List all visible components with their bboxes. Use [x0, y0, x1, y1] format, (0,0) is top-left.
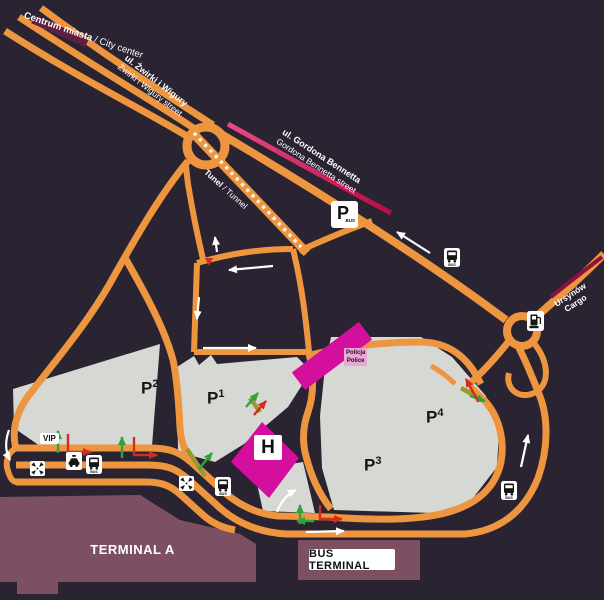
- road-loop-right: [293, 249, 309, 352]
- parking-p2-area: [13, 344, 160, 447]
- bus-stop-icon: [444, 248, 460, 267]
- parking-p4-label: P4: [426, 407, 443, 428]
- parking-p2-label: P2: [141, 378, 158, 399]
- police-label: Policja Police: [344, 348, 367, 366]
- taxi-icon: [66, 452, 82, 470]
- road-bundle-2: [19, 17, 198, 131]
- parking-p3-label: P3: [364, 455, 381, 476]
- map-canvas: BUS: [0, 0, 604, 600]
- terminal-a-annex: [17, 582, 58, 594]
- road-loop-stem: [186, 164, 203, 259]
- parking-p1-label: P1: [207, 388, 224, 409]
- vip-label: VIP: [40, 433, 59, 444]
- airport-access-map: BUS: [0, 0, 604, 600]
- terminal-a-label: TERMINAL A: [30, 542, 235, 557]
- meeting-point-icon: [179, 476, 194, 491]
- meeting-point-icon: [30, 461, 45, 476]
- road-loop-left: [194, 263, 197, 352]
- bus-stop-icon: [215, 477, 231, 496]
- fuel-station-icon: [527, 311, 544, 331]
- road-roundabout2-down: [469, 341, 509, 384]
- bus-stop-icon: [86, 455, 102, 474]
- bus-parking-sign: P BUS: [331, 201, 358, 228]
- bus-parking-sub: BUS: [345, 218, 355, 223]
- hotel-label: H: [254, 435, 282, 460]
- bus-stop-icon: [501, 481, 517, 500]
- bus-terminal-label: BUS TERMINAL: [309, 549, 395, 570]
